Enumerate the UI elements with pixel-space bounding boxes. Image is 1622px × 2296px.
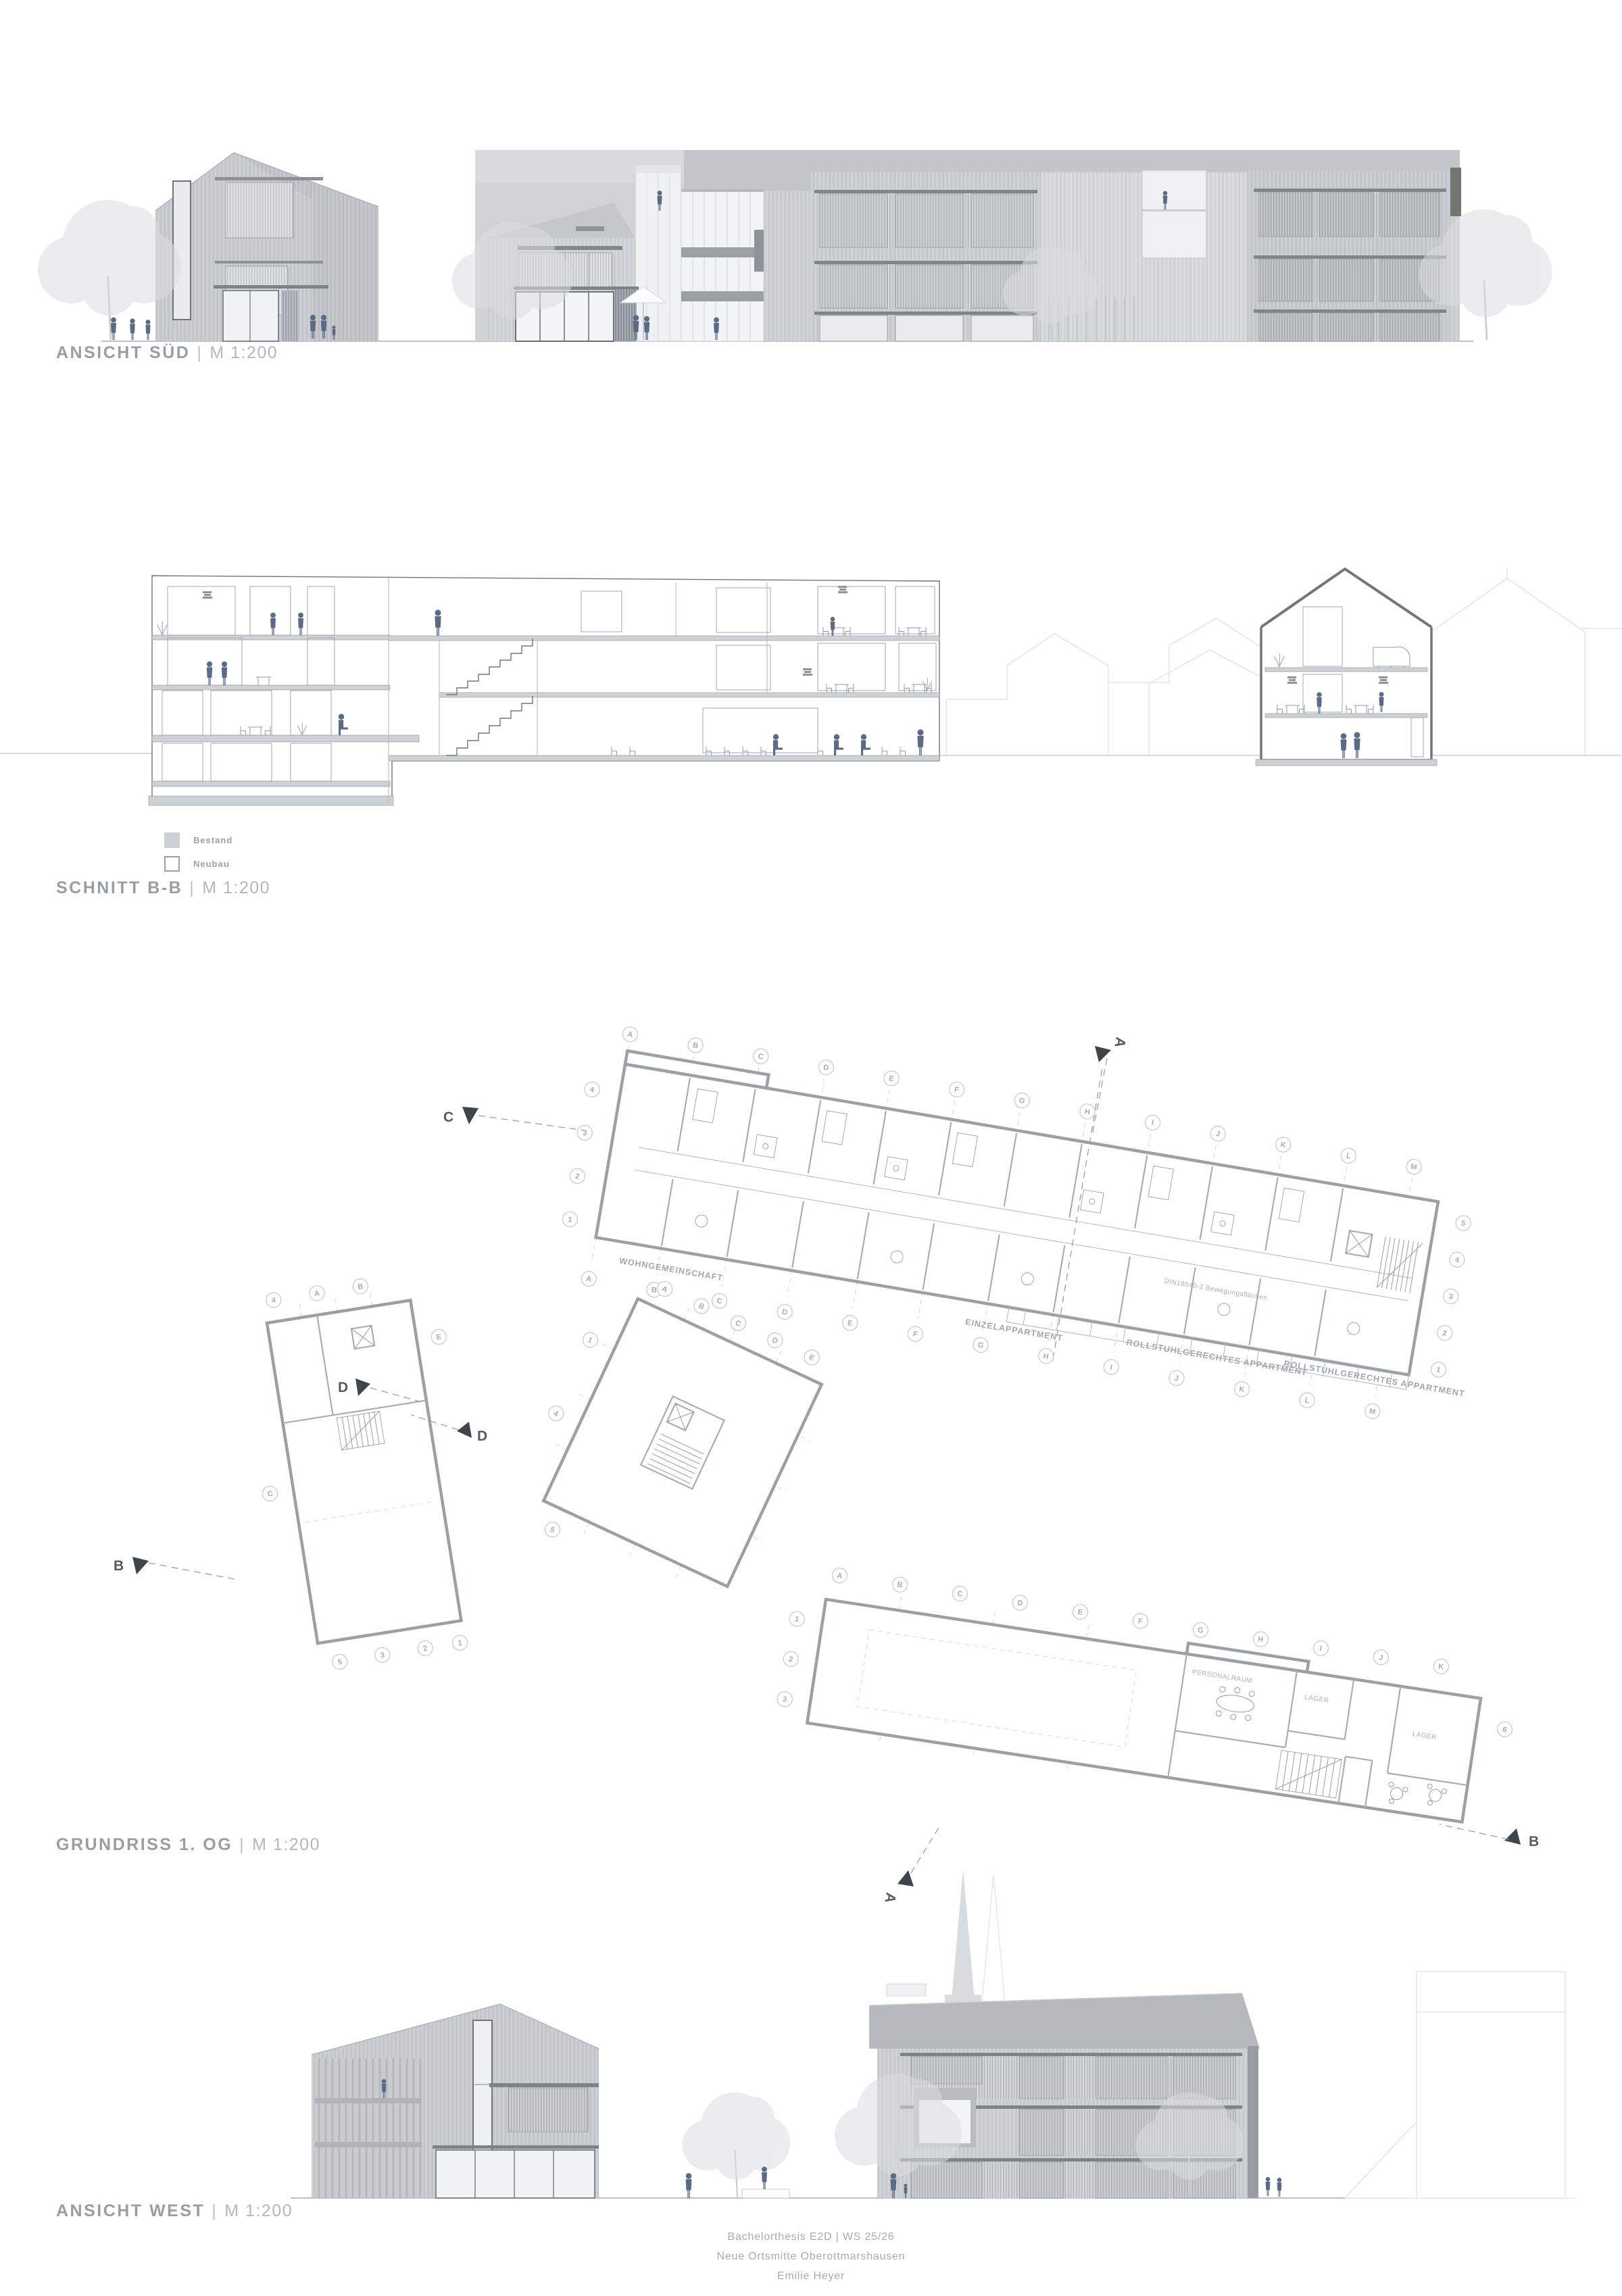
grid-bubble: 4 [546,1403,566,1423]
grid-bubble: L [1340,1147,1357,1164]
grid-bubble: 2 [569,1168,586,1184]
grid-bubble: B [687,1037,704,1053]
grid-bubble: 2 [417,1640,434,1657]
plan-left-building: 4 A B E C 5 3 2 1 [232,1267,495,1677]
grid-bubble: F [907,1326,924,1343]
grid-bubble: B [691,1296,711,1316]
grid-bubble: A [308,1284,325,1301]
section-mark-d: D [477,1428,487,1444]
grid-bubble: C [952,1585,968,1602]
grid-bubble: J [1209,1125,1226,1142]
grid-bubble: 5 [1454,1214,1471,1231]
grid-bubble: G [1014,1092,1031,1109]
grid-bubble: C [729,1314,748,1333]
divider: | [197,343,203,362]
grid-bubble: K [1275,1136,1292,1153]
section-title: ANSICHT SÜD [56,343,190,362]
legend-item-neubau: Neubau [164,856,232,872]
grid-bubble: C [752,1048,769,1065]
grid-bubble: G [972,1337,989,1353]
section-mark-d: D [338,1380,348,1395]
south-far-right-building [1247,170,1450,341]
grid-bubble: 3 [374,1647,391,1664]
grid-bubble: H [1037,1347,1054,1364]
grid-bubble: 1 [581,1330,600,1349]
church-spire [945,1869,1006,2010]
background-building-outline [1345,1972,1565,2198]
section-mark-b: B [1529,1834,1539,1849]
grid-bubble: K [1433,1658,1450,1675]
section-mark-a: A [1111,1036,1128,1049]
grid-bubble: 3 [576,1124,593,1141]
south-right-building [811,172,1041,341]
west-left-house [312,2004,599,2198]
grid-bubble: 1 [562,1211,579,1228]
grid-bubble: D [1012,1595,1029,1612]
grid-bubble: 4 [583,1081,600,1098]
grid-bubble: E [1072,1603,1089,1620]
grid-bubble: F [1132,1612,1149,1629]
room-label: WOHNGEMEINSCHAFT [618,1256,724,1283]
section-main-building [149,576,939,805]
svg-text:M: M [1410,1163,1417,1172]
grid-bubble: C [262,1485,278,1502]
section-mark-a: A [881,1891,898,1904]
scale-label: M 1:200 [210,343,278,362]
section-mark-b: B [114,1558,124,1574]
grid-bubble: E [431,1328,447,1345]
grid-bubble: A [581,1270,597,1287]
project-course: Bachelorthesis E2D | WS 25/26 [0,2227,1622,2247]
grid-bubble: M [1405,1158,1422,1175]
grid-bubble: K [1233,1380,1250,1397]
grid-bubble: 5 [543,1520,562,1539]
legend-label: Bestand [193,835,232,845]
grid-bubble: F [948,1081,965,1098]
presentation-board: A B C D E F G H I J K L M A B C D E F G … [0,0,1622,2296]
grid-bubble: 2 [1436,1324,1453,1341]
title-block: Bachelorthesis E2D | WS 25/26 Neue Ortsm… [0,2227,1622,2286]
scale-label: M 1:200 [202,878,270,897]
svg-text:M: M [1369,1407,1376,1416]
divider: | [189,878,195,897]
elevation-west-drawing [291,1869,1575,2198]
grid-bubble: 1 [451,1634,468,1651]
label-schnitt-bb: SCHNITT B-B|M 1:200 [56,878,270,898]
grid-bubble: H [1079,1103,1096,1120]
label-ansicht-sued: ANSICHT SÜD|M 1:200 [56,343,278,363]
grid-bubble: 5 [331,1653,348,1670]
section-mark-c: C [443,1109,453,1125]
grid-bubble: C [711,1292,728,1309]
svg-text:G: G [1197,1626,1204,1635]
grid-bubble: D [818,1059,835,1076]
label-grundriss: GRUNDRISS 1. OG|M 1:200 [56,1835,320,1855]
scale-label: M 1:200 [252,1835,320,1854]
elevation-south-drawing [38,150,1552,341]
label-ansicht-west: ANSICHT WEST|M 1:200 [56,2201,293,2221]
grid-bubble: 3 [777,1691,793,1707]
legend-item-bestand: Bestand [164,832,232,848]
section-title: SCHNITT B-B [56,878,182,897]
grid-bubble: B [352,1278,369,1295]
grid-bubble: D [765,1330,785,1350]
grid-bubble: 2 [783,1651,800,1668]
grid-bubble: B [891,1576,908,1593]
south-left-house [155,153,378,341]
grid-bubble: D [777,1303,793,1320]
section-bb-drawing [0,568,1622,805]
grid-bubble: E [883,1070,900,1087]
grid-bubble: A [622,1026,639,1043]
grid-bubble: 4 [1448,1251,1465,1268]
plan-hall-building: A B C D E F G H I J K 1 2 3 6 PERSONALRA… [773,1562,1521,1837]
grid-bubble: I [1312,1640,1329,1657]
grid-bubble: 3 [1442,1288,1459,1305]
author-name: Emilie Heyer [0,2266,1622,2286]
section-right-house [1256,569,1437,766]
grid-bubble: G [1192,1622,1209,1639]
grid-bubble: 1 [1430,1361,1447,1378]
grid-bubble: I [1144,1114,1161,1131]
scale-label: M 1:200 [224,2201,293,2220]
legend-label: Neubau [193,859,230,869]
grid-bubble: J [1373,1649,1390,1666]
plinth [742,2189,789,2198]
dark-edge-panel [1450,168,1461,216]
neubau-swatch [164,856,180,872]
grid-bubble: 6 [1496,1721,1513,1738]
grid-bubble: J [1168,1370,1185,1387]
section-title: ANSICHT WEST [56,2201,205,2220]
grid-bubble: 1 [789,1610,806,1627]
grid-bubble: L [1299,1392,1316,1409]
grid-bubble: H [1252,1630,1269,1647]
legend: Bestand Neubau [164,832,232,880]
grid-bubble: I [1103,1359,1120,1376]
project-name: Neue Ortsmitte Oberottmarshausen [0,2247,1622,2266]
grid-bubble: A [831,1567,848,1584]
bestand-swatch [164,832,180,848]
grid-bubble: E [802,1347,822,1367]
grid-bubble: M [1364,1403,1381,1420]
south-glass-building [681,189,764,341]
plan-square-building: A B C D E 1 4 5 [501,1259,845,1619]
grid-bubble: E [841,1314,858,1331]
floor-plan-drawing: A B C D E F G H I J K L M A B C D E F G … [114,985,1539,1904]
divider: | [239,1835,245,1854]
divider: | [212,2201,218,2220]
grid-bubble: 4 [265,1291,282,1308]
south-stair-tower [635,165,681,341]
section-title: GRUNDRISS 1. OG [56,1835,232,1854]
